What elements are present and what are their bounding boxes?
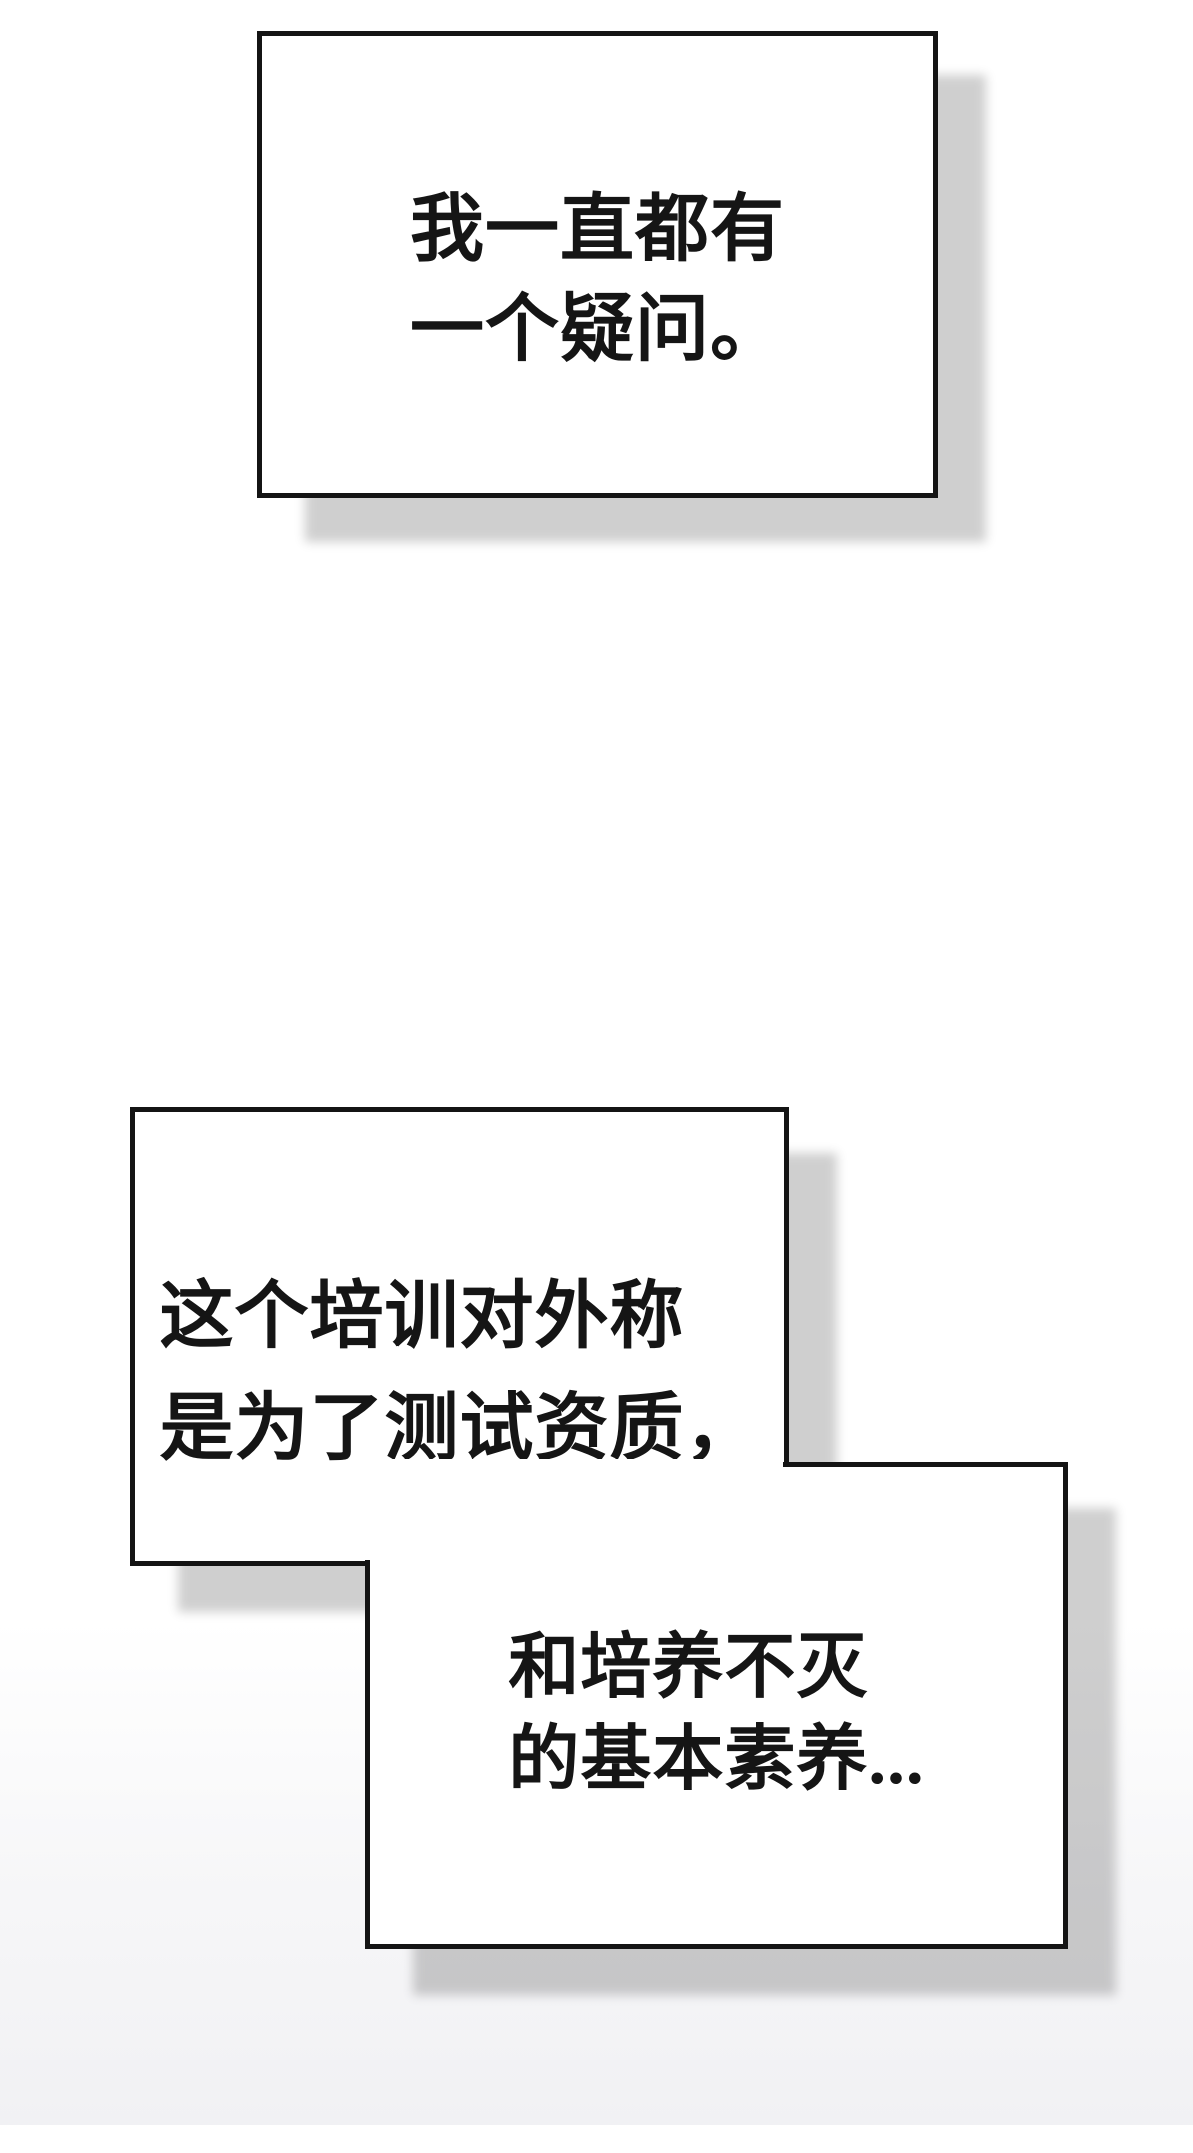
speech-bubble-3-text: 和培养不灭 的基本素养... (508, 1622, 924, 1806)
text-line: 我一直都有 (410, 180, 785, 280)
speech-bubble-1-text: 我一直都有 一个疑问。 (410, 180, 785, 380)
text-line: 一个疑问。 (410, 280, 785, 380)
text-line: 和培养不灭 (508, 1622, 924, 1714)
text-line: 这个培训对外称 (160, 1261, 760, 1373)
speech-bubble-2-text: 这个培训对外称 是为了测试资质， (160, 1261, 760, 1485)
speech-bubble-1: 我一直都有 一个疑问。 (257, 31, 938, 498)
comic-page: 我一直都有 一个疑问。 这个培训对外称 是为了测试资质， 和培养不灭 的基本素养… (0, 0, 1193, 2153)
page-bottom-white-strip (0, 2125, 1193, 2153)
bubble-join-patch (360, 1459, 783, 1560)
text-line: 的基本素养... (508, 1714, 924, 1806)
